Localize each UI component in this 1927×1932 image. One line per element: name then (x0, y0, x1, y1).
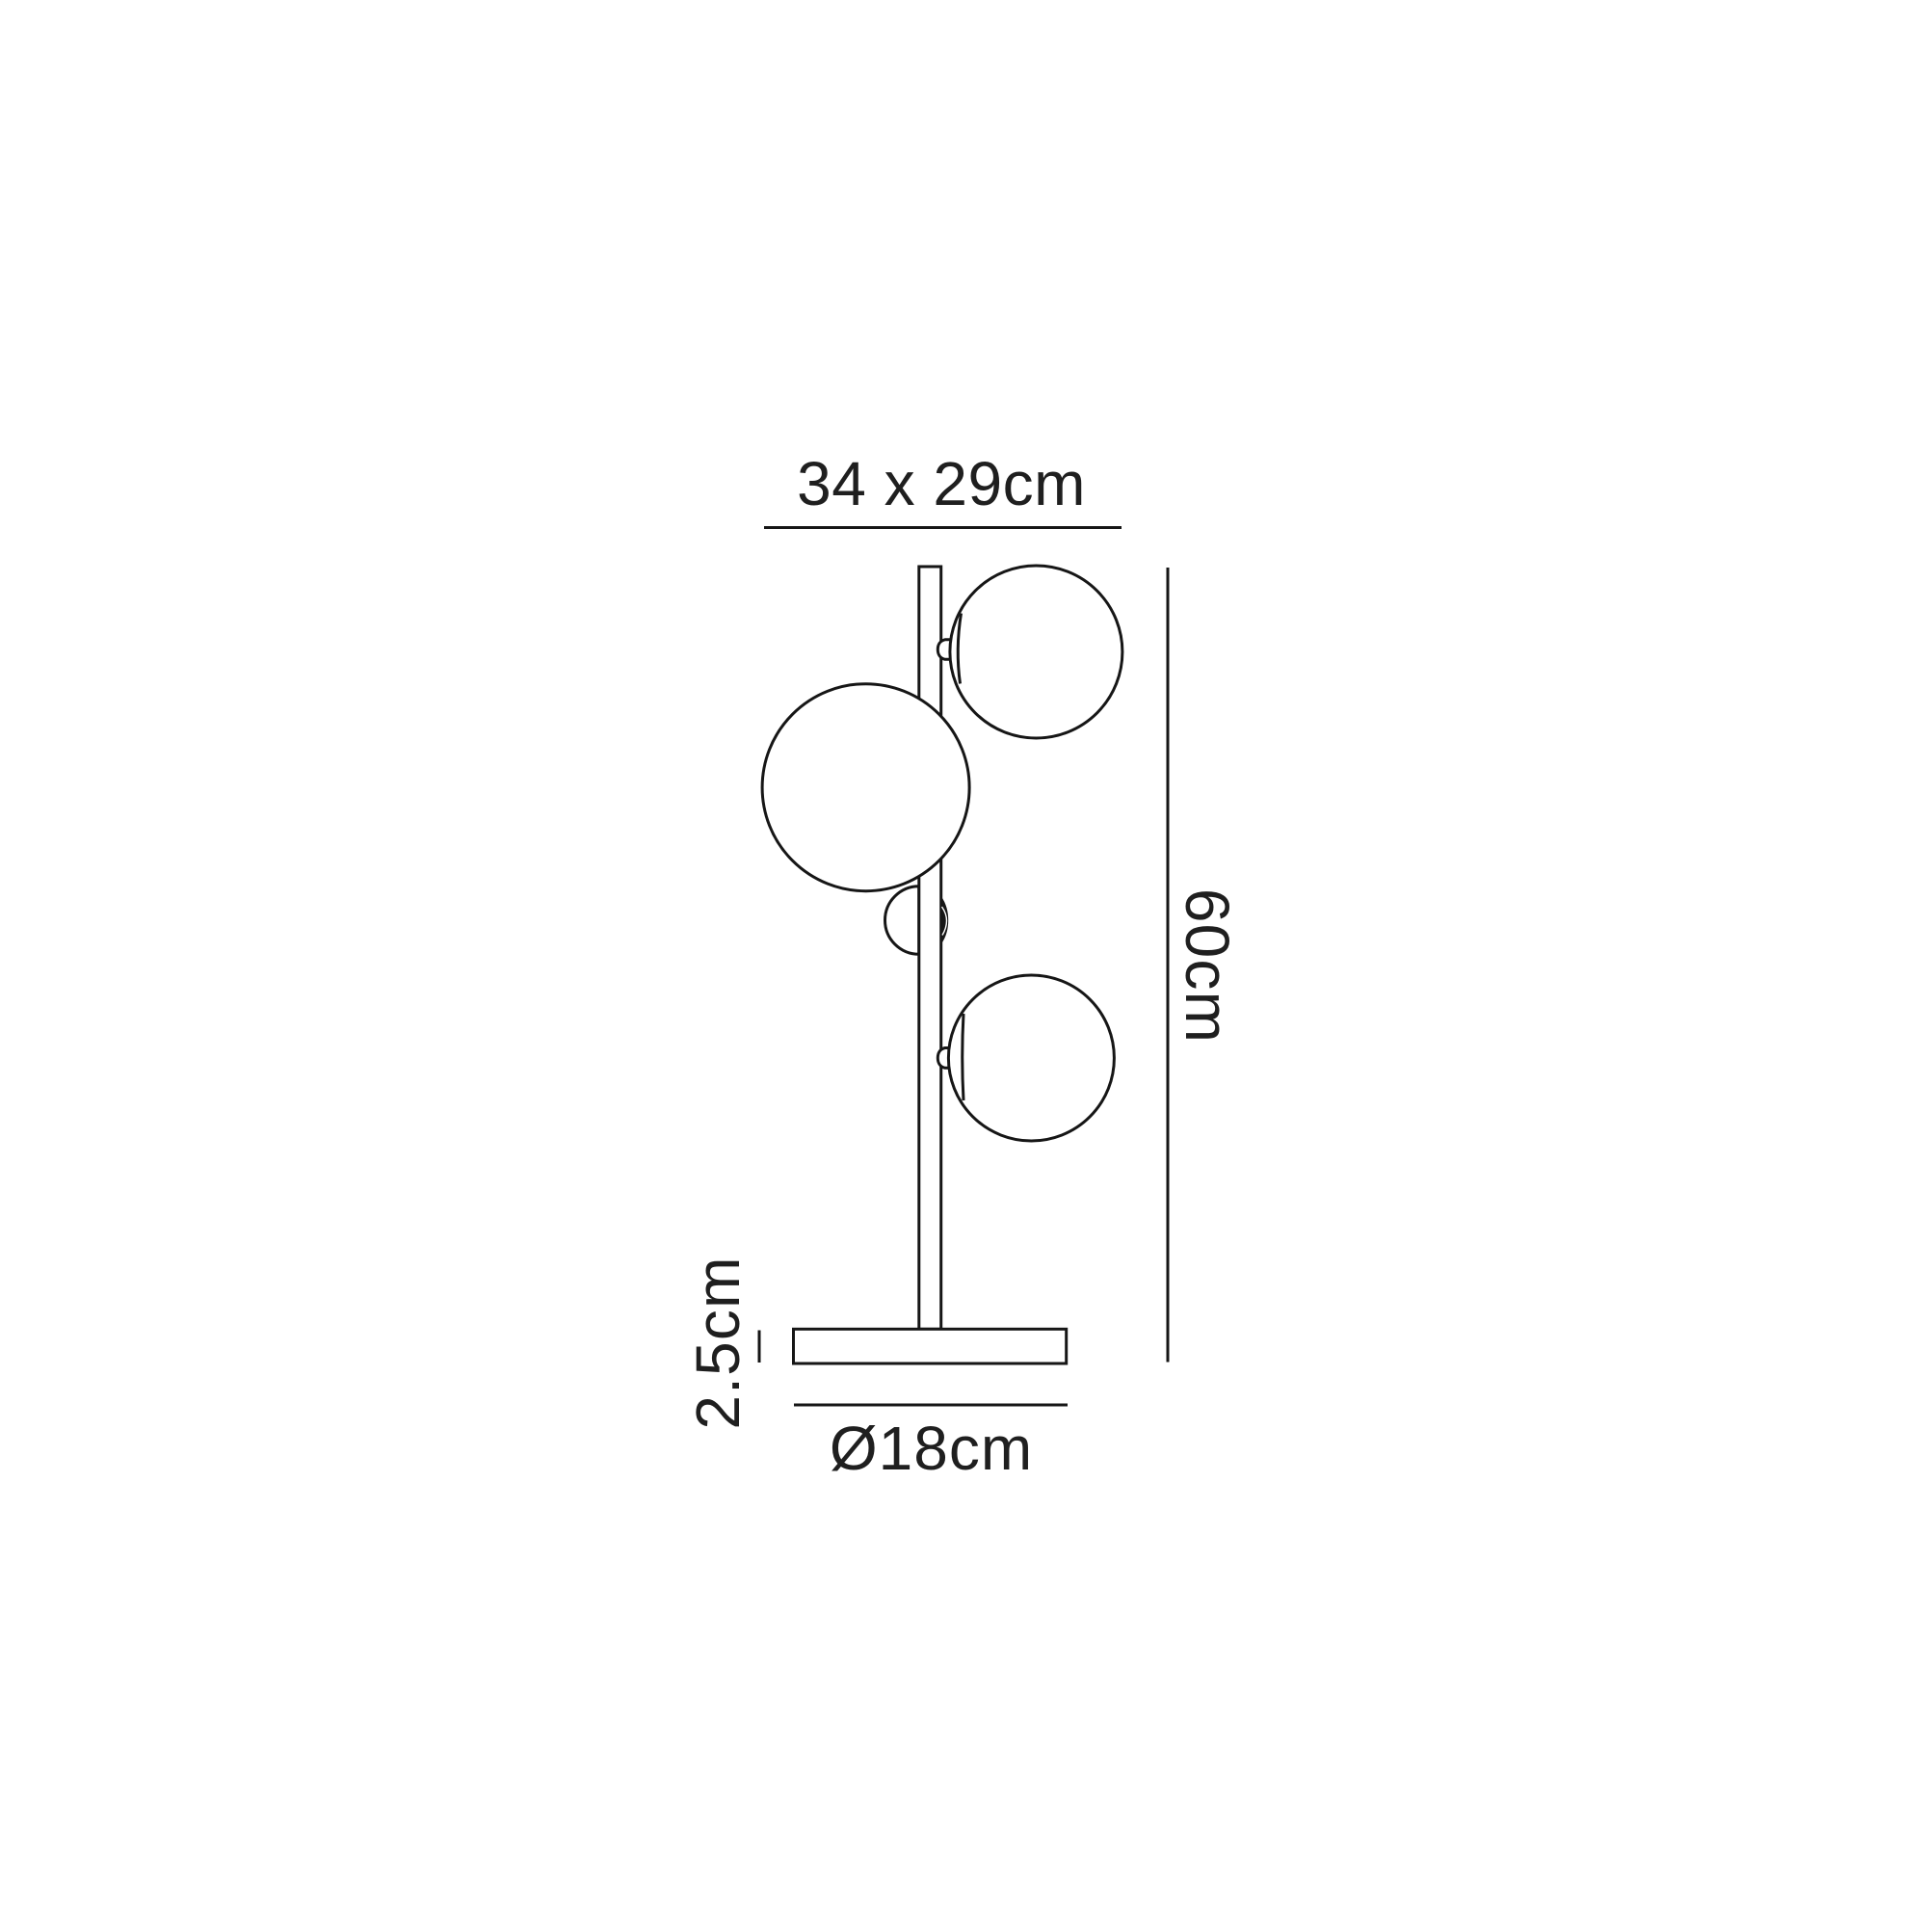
svg-text:2.5cm: 2.5cm (683, 1256, 752, 1429)
svg-text:Ø18cm: Ø18cm (830, 1414, 1033, 1483)
svg-text:34 x 29cm: 34 x 29cm (797, 449, 1086, 518)
svg-text:60cm: 60cm (1173, 888, 1242, 1044)
